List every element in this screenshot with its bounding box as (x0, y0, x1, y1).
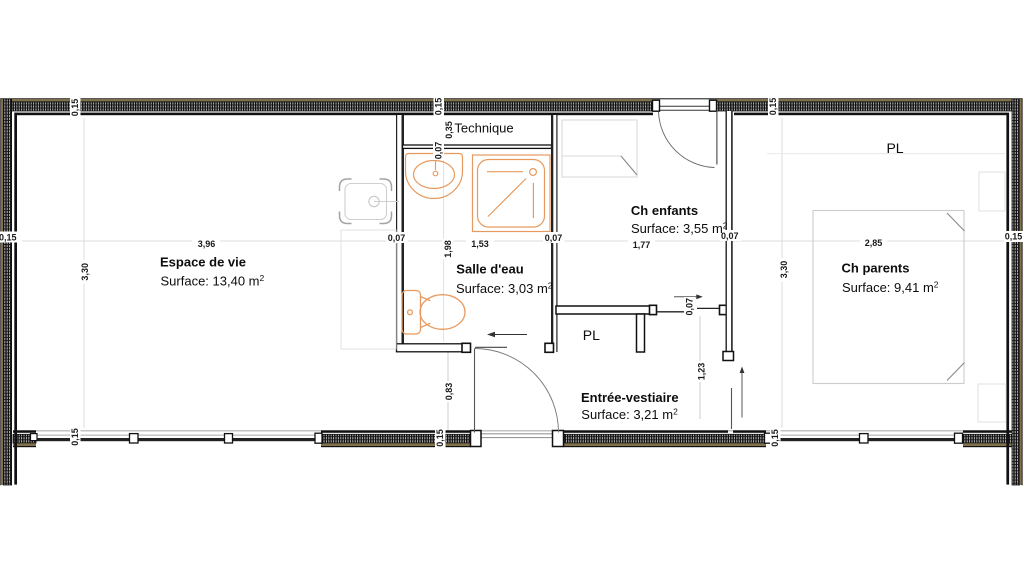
svg-text:1,23: 1,23 (697, 363, 707, 381)
svg-text:1,77: 1,77 (633, 240, 651, 250)
svg-text:Entrée-vestiaire: Entrée-vestiaire (581, 390, 679, 405)
svg-text:0,35: 0,35 (444, 121, 454, 139)
svg-text:0,07: 0,07 (388, 233, 406, 243)
svg-text:Ch enfants: Ch enfants (631, 203, 698, 218)
svg-text:0,15: 0,15 (435, 429, 445, 447)
svg-text:0,15: 0,15 (1005, 232, 1023, 242)
svg-text:0,15: 0,15 (434, 98, 444, 116)
svg-text:0,07: 0,07 (545, 233, 563, 243)
svg-text:2,85: 2,85 (865, 238, 883, 248)
svg-text:1,53: 1,53 (471, 239, 489, 249)
svg-text:PL: PL (583, 327, 600, 343)
svg-text:1,98: 1,98 (443, 240, 453, 258)
svg-text:0,15: 0,15 (70, 428, 80, 446)
svg-text:0,07: 0,07 (685, 298, 695, 316)
svg-text:Espace de vie: Espace de vie (160, 254, 246, 269)
svg-text:Surface: 3,21 m2: Surface: 3,21 m2 (581, 407, 678, 423)
svg-text:0,15: 0,15 (70, 99, 80, 117)
svg-text:0,07: 0,07 (721, 231, 739, 241)
svg-text:Surface: 3,55 m2: Surface: 3,55 m2 (631, 221, 728, 237)
svg-text:3,30: 3,30 (779, 261, 789, 279)
svg-text:Surface: 13,40 m2: Surface: 13,40 m2 (161, 273, 265, 289)
svg-text:0,15: 0,15 (768, 98, 778, 116)
svg-text:Surface: 9,41 m2: Surface: 9,41 m2 (842, 279, 939, 295)
svg-text:0,07: 0,07 (433, 142, 443, 160)
svg-text:3,30: 3,30 (80, 263, 90, 281)
svg-text:PL: PL (886, 140, 903, 156)
svg-text:0,15: 0,15 (770, 429, 780, 447)
svg-text:Technique: Technique (454, 121, 513, 136)
svg-text:0,15: 0,15 (0, 232, 17, 242)
svg-text:Surface: 3,03 m2: Surface: 3,03 m2 (456, 280, 553, 296)
svg-text:0,83: 0,83 (444, 383, 454, 401)
svg-text:Ch parents: Ch parents (842, 261, 910, 276)
svg-text:3,96: 3,96 (198, 239, 216, 249)
svg-text:Salle d'eau: Salle d'eau (456, 262, 523, 277)
